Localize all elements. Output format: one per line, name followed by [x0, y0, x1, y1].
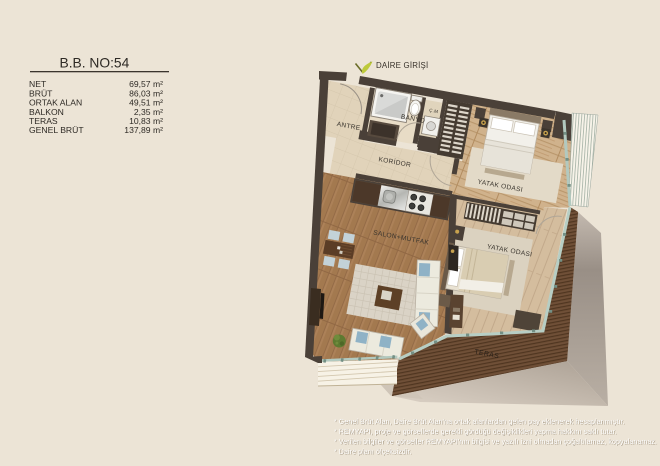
- svg-text:B.B. NO:54: B.B. NO:54: [60, 56, 130, 71]
- svg-text:* Genel Brüt Alan, Daire Brüt: * Genel Brüt Alan, Daire Brüt Alan'na or…: [334, 419, 625, 426]
- svg-text:* Daire planı ölçeksizdir.: * Daire planı ölçeksizdir.: [334, 449, 412, 456]
- svg-text:DAİRE GİRİŞİ: DAİRE GİRİŞİ: [376, 61, 428, 70]
- svg-text:* Verilen bilgiler ve görselle: * Verilen bilgiler ve görseller REMYAPI'…: [334, 439, 657, 446]
- svg-text:GENEL BRÜT: GENEL BRÜT: [29, 125, 84, 135]
- svg-text:* REMYAPI, proje ve görsellerd: * REMYAPI, proje ve görsellerde gerekli …: [334, 429, 617, 436]
- svg-text:137,89 m²: 137,89 m²: [124, 125, 163, 135]
